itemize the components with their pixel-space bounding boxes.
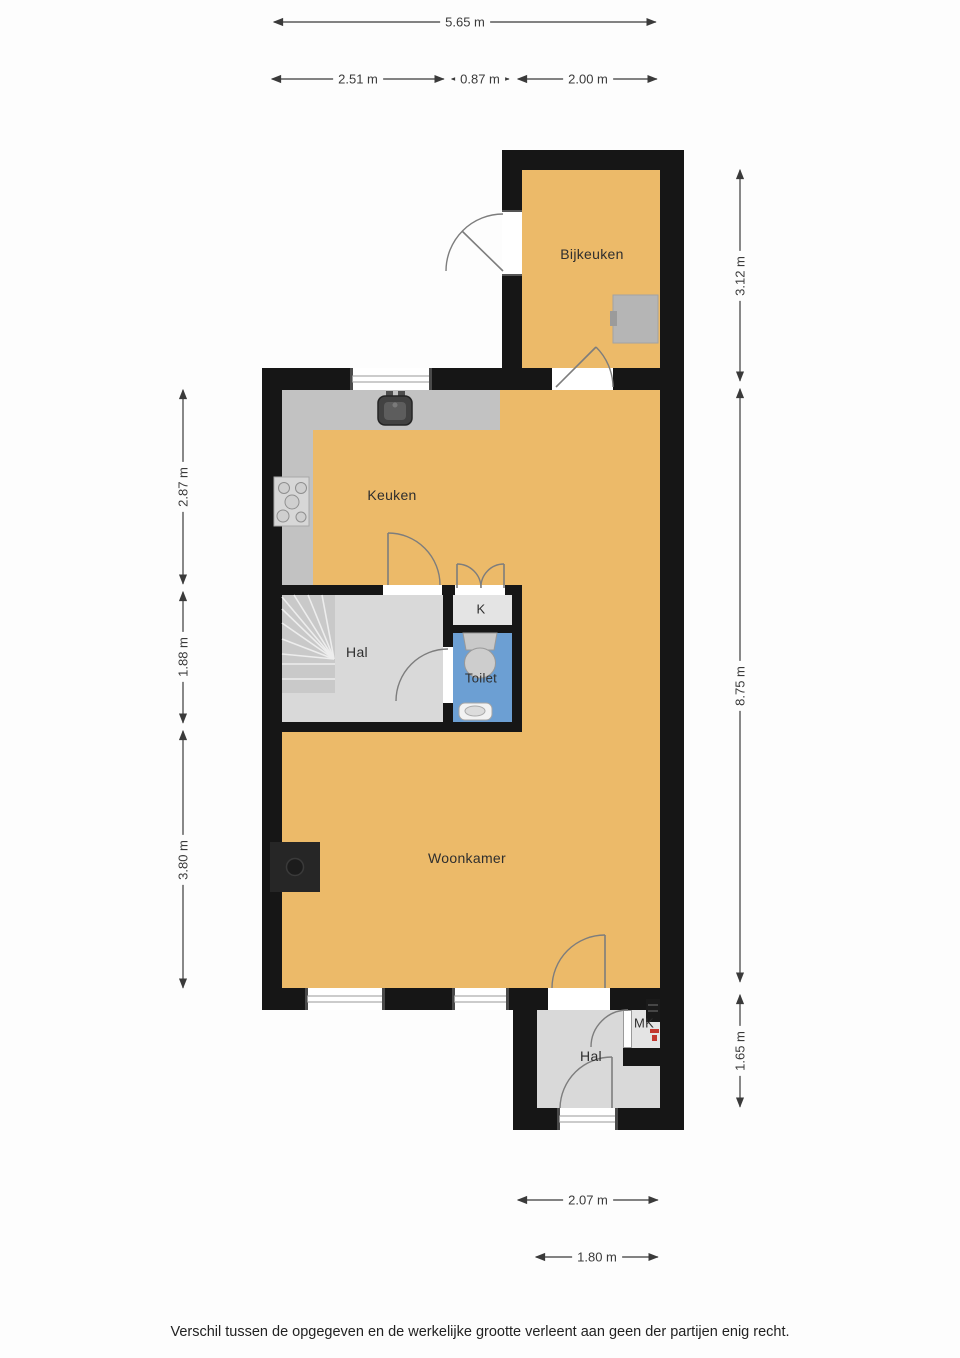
room-label-keuken: Keuken bbox=[367, 487, 416, 503]
room-label-woonkamer: Woonkamer bbox=[428, 850, 506, 866]
dim-right-upper: 3.12 m bbox=[733, 251, 748, 301]
toilet-door bbox=[396, 649, 448, 701]
dim-bottom-upper: 2.07 m bbox=[563, 1193, 613, 1208]
dim-top-mid: 0.87 m bbox=[455, 72, 505, 87]
room-label-hal-mid: Hal bbox=[346, 644, 368, 660]
fireplace-icon bbox=[270, 842, 320, 892]
bijkeuken-exterior-door bbox=[446, 214, 503, 271]
room-label-bijkeuken: Bijkeuken bbox=[560, 246, 623, 262]
dim-left-upper: 2.87 m bbox=[176, 462, 191, 512]
dim-left-lower: 3.80 m bbox=[176, 835, 191, 885]
disclaimer-text: Verschil tussen de opgegeven en de werke… bbox=[0, 1324, 960, 1340]
woonkamer-hal-door bbox=[552, 935, 605, 988]
dim-top-total: 5.65 m bbox=[440, 15, 490, 30]
mk-door-swing bbox=[591, 1010, 628, 1047]
dimension-lines bbox=[183, 22, 740, 1257]
floorplan-canvas: Bijkeuken Keuken Hal K Toilet Woonkamer … bbox=[0, 0, 960, 1358]
front-door-swing bbox=[560, 1057, 612, 1108]
dim-right-lower: 1.65 m bbox=[733, 1026, 748, 1076]
room-label-toilet: Toilet bbox=[465, 671, 497, 686]
toilet-sink-icon bbox=[459, 703, 492, 720]
room-label-hal-bottom: Hal bbox=[580, 1048, 602, 1064]
dim-left-middle: 1.88 m bbox=[176, 632, 191, 682]
keuken-hal-door bbox=[388, 533, 440, 585]
stove-icon bbox=[274, 477, 309, 526]
k-closet-double-doors bbox=[457, 564, 504, 588]
kitchen-sink-icon bbox=[378, 391, 412, 425]
staircase bbox=[282, 595, 335, 679]
bijkeuken-appliance-icon bbox=[610, 295, 658, 343]
dim-top-left: 2.51 m bbox=[333, 72, 383, 87]
room-label-k-closet: K bbox=[477, 602, 486, 617]
room-label-mk: MK bbox=[634, 1016, 654, 1031]
dim-bottom-lower: 1.80 m bbox=[572, 1250, 622, 1265]
dim-top-right: 2.00 m bbox=[563, 72, 613, 87]
bijkeuken-bottom-door bbox=[556, 347, 613, 387]
dim-right-middle: 8.75 m bbox=[733, 661, 748, 711]
